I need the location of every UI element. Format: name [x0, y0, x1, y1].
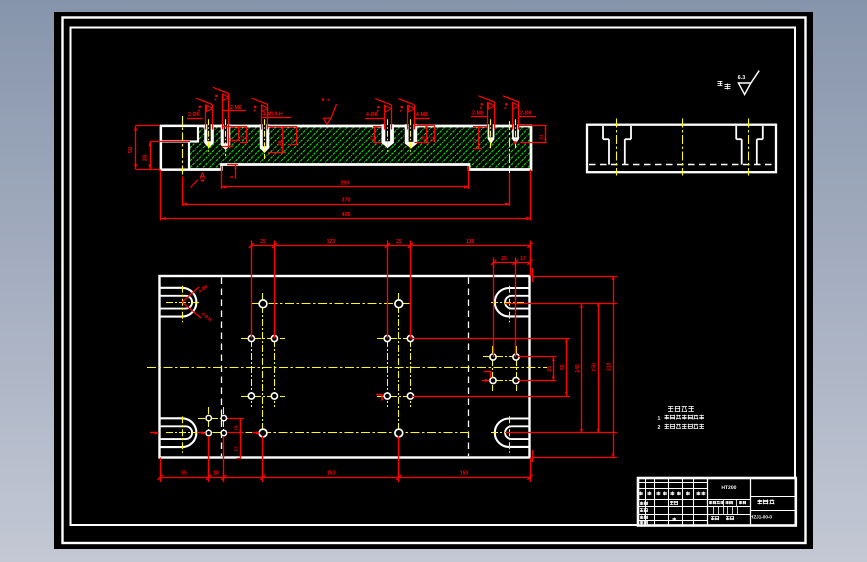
svg-text:21: 21 — [472, 138, 477, 143]
svg-text:2-Ø6: 2-Ø6 — [188, 112, 200, 118]
svg-text:18: 18 — [213, 471, 219, 477]
svg-text:A: A — [199, 171, 205, 181]
svg-text:150: 150 — [592, 363, 598, 372]
svg-text:6.3: 6.3 — [738, 75, 746, 81]
svg-text:18: 18 — [234, 425, 239, 431]
svg-text:2-M8: 2-M8 — [472, 111, 484, 117]
svg-text:20: 20 — [277, 140, 282, 145]
svg-text:2-Ø8: 2-Ø8 — [520, 111, 532, 117]
svg-text:65: 65 — [560, 364, 566, 370]
svg-text:12: 12 — [240, 135, 245, 140]
svg-text:25: 25 — [260, 239, 266, 245]
svg-text:4-Ø8: 4-Ø8 — [366, 112, 378, 118]
svg-text:25: 25 — [396, 239, 402, 245]
svg-text:153: 153 — [327, 471, 336, 477]
svg-text:290: 290 — [340, 181, 349, 187]
svg-text:50: 50 — [128, 147, 134, 153]
svg-text:21: 21 — [290, 137, 295, 142]
svg-text:1: 1 — [657, 416, 660, 422]
svg-text:55: 55 — [181, 471, 187, 477]
svg-text:21: 21 — [430, 136, 435, 141]
svg-text:145: 145 — [575, 364, 581, 373]
svg-text:406: 406 — [341, 212, 350, 218]
svg-text:28: 28 — [143, 155, 149, 161]
svg-text:4-M10-H: 4-M10-H — [263, 112, 283, 118]
svg-text:150: 150 — [460, 471, 469, 477]
svg-text:4-M8: 4-M8 — [416, 112, 428, 118]
svg-text:HT200: HT200 — [721, 485, 736, 491]
svg-text:2: 2 — [657, 425, 660, 431]
svg-text:25: 25 — [501, 256, 507, 262]
svg-text:370: 370 — [341, 198, 350, 204]
svg-text:21: 21 — [370, 135, 375, 140]
svg-text:15: 15 — [229, 137, 234, 142]
svg-text:21: 21 — [539, 134, 544, 140]
svg-text:20: 20 — [421, 135, 426, 140]
svg-text:17: 17 — [234, 446, 239, 452]
svg-text:123: 123 — [327, 239, 336, 245]
svg-text:17: 17 — [520, 256, 526, 262]
svg-text:HZJ1-00-0: HZJ1-00-0 — [750, 514, 772, 519]
svg-text:138: 138 — [466, 239, 475, 245]
svg-text:5: 5 — [229, 175, 234, 178]
svg-text:210: 210 — [607, 362, 613, 371]
svg-text:25: 25 — [547, 366, 553, 372]
